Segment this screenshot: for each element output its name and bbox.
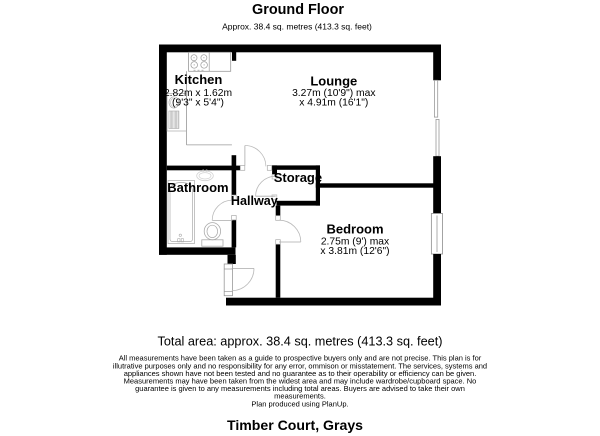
svg-text:Bedroom: Bedroom (326, 221, 383, 236)
svg-text:Total area: approx. 38.4 sq. m: Total area: approx. 38.4 sq. metres (413… (158, 334, 443, 348)
svg-text:Bathroom: Bathroom (167, 180, 228, 195)
svg-text:Ground Floor: Ground Floor (252, 2, 344, 18)
svg-text:Lounge: Lounge (310, 74, 357, 89)
svg-text:Plan produced using PlanUp.: Plan produced using PlanUp. (251, 399, 348, 408)
svg-text:x 4.91m (16'1"): x 4.91m (16'1") (299, 98, 368, 109)
svg-text:x 3.81m (12'6"): x 3.81m (12'6") (320, 246, 389, 257)
svg-text:(9'3" x 5'4"): (9'3" x 5'4") (172, 98, 224, 109)
svg-text:Timber Court, Grays: Timber Court, Grays (227, 417, 363, 433)
svg-text:Hallway: Hallway (231, 194, 278, 208)
svg-text:Storage: Storage (274, 170, 322, 185)
svg-text:Approx. 38.4 sq. metres (413.3: Approx. 38.4 sq. metres (413.3 sq. feet) (222, 22, 372, 32)
svg-text:Kitchen: Kitchen (175, 72, 223, 87)
